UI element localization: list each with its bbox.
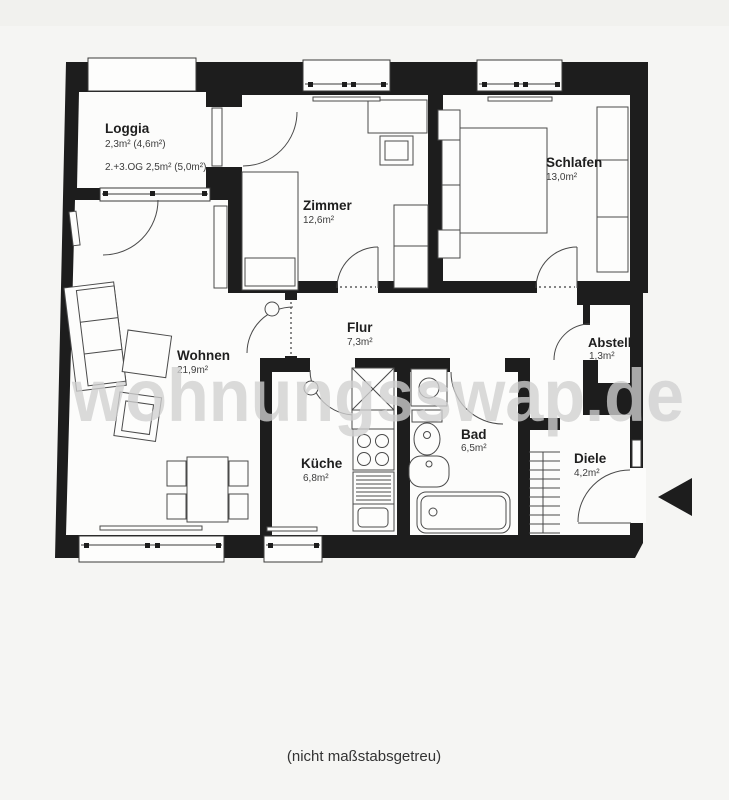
watermark-text: wohnungsswap.de [71, 354, 684, 437]
loggia-zimmer-door-leaf [212, 108, 222, 166]
room-area-zimmer: 12,6m² [303, 215, 335, 226]
kueche-dishrack [353, 472, 394, 504]
room-area-loggia: 2,3m² (4,6m²) [105, 139, 166, 150]
wohnen-heater [100, 526, 202, 530]
room-area-bad: 6,5m² [461, 443, 487, 454]
room-area-flur: 7,3m² [347, 337, 373, 348]
room-area-diele: 4,2m² [574, 468, 600, 479]
entrance-sidelight-window [632, 440, 641, 467]
zimmer-bed [242, 172, 298, 290]
scale-note: (nicht maßstabsgetreu) [287, 748, 441, 765]
wohnen-sideboard [214, 206, 227, 288]
kueche-window-sill [267, 527, 317, 531]
wohnen-bottom-window [79, 536, 224, 562]
kueche-bottom-window [264, 536, 322, 562]
kueche-sink [353, 504, 394, 531]
zimmer-chair [380, 136, 413, 165]
room-label-schlafen: Schlafen [546, 155, 602, 170]
schlafen-window-sill [488, 97, 552, 101]
floorplan-page: Loggia 2,3m² (4,6m²) 2.+3.OG 2,5m² (5,0m… [0, 0, 729, 800]
room-label-diele: Diele [574, 451, 607, 466]
room-label-abstell: Abstell [588, 335, 631, 350]
schlafen-top-window [477, 60, 562, 91]
room-area-kueche: 6,8m² [303, 473, 329, 484]
floorplan-svg: Loggia 2,3m² (4,6m²) 2.+3.OG 2,5m² (5,0m… [0, 0, 729, 800]
bad-bathtub [417, 492, 510, 533]
loggia-parapet-window [88, 58, 196, 91]
opening-loggia-zimmer [204, 107, 244, 167]
top-strip [0, 0, 729, 26]
opening-entrance [628, 468, 646, 523]
bad-sink [409, 456, 449, 487]
room-label-zimmer: Zimmer [303, 198, 353, 213]
room-label-kueche: Küche [301, 456, 343, 471]
room-extra-loggia: 2.+3.OG 2,5m² (5,0m²) [105, 162, 206, 173]
zimmer-window-sill [313, 97, 380, 101]
schlafen-wardrobe [597, 107, 628, 272]
zimmer-desk [368, 100, 427, 133]
room-label-flur: Flur [347, 320, 373, 335]
floor-flur [297, 293, 583, 358]
wohnen-door-knob [265, 302, 279, 316]
room-area-schlafen: 13,0m² [546, 172, 578, 183]
room-label-loggia: Loggia [105, 121, 150, 136]
floor-stairs [530, 430, 560, 535]
zimmer-shelf [394, 205, 428, 288]
